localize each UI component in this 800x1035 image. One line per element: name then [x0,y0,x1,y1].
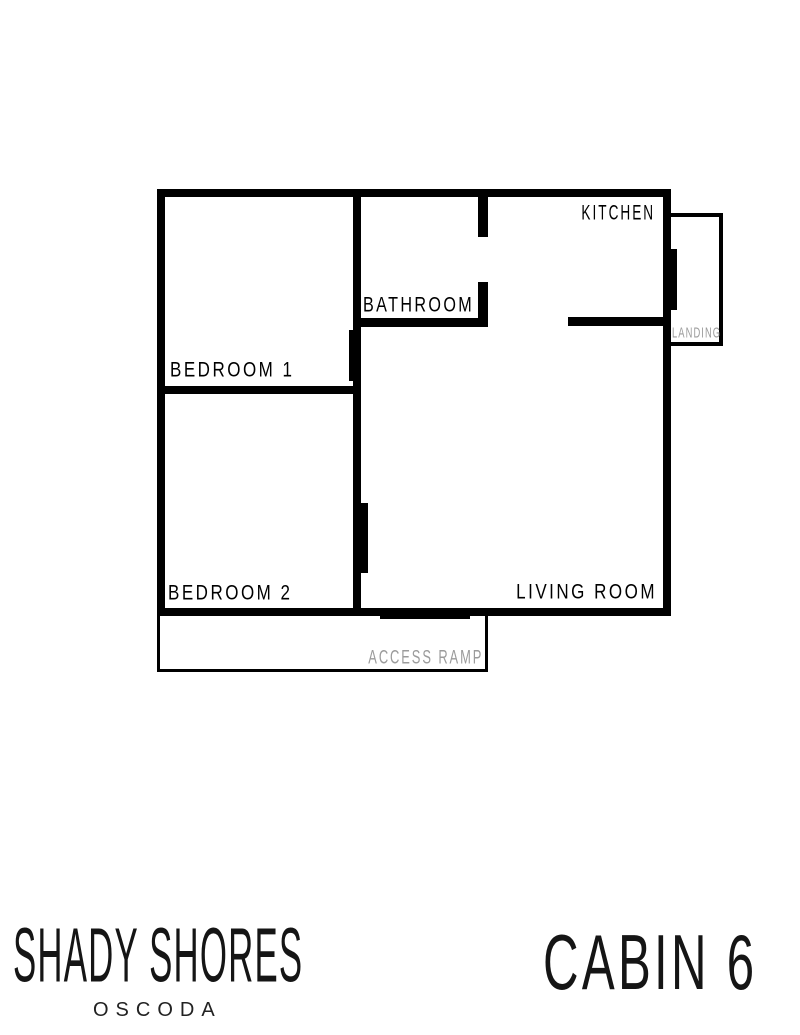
cabin-number-title: CABIN 6 [543,924,757,1002]
wall-kitchen-living-divider [568,317,671,326]
wall-bathroom-bottom [353,318,488,327]
resort-location: OSCODA [93,1000,222,1020]
living-room-label: LIVING ROOM [516,581,657,602]
wall-bedroom-divider [157,386,361,394]
kitchen-label: KITCHEN [581,202,655,223]
wall-bathroom-stub-upper [478,189,488,237]
resort-name-logo: SHADY SHORES [13,918,303,995]
bedroom-1-label: BEDROOM 1 [170,359,295,380]
floor-plan-page: KITCHEN BATHROOM BEDROOM 1 BEDROOM 2 LIV… [0,0,800,1035]
wall-bathroom-stub-lower [478,282,488,327]
wall-exterior-left [157,189,165,616]
bathroom-label: BATHROOM [363,294,474,315]
door-ramp-threshold [380,610,470,619]
bedroom-2-label: BEDROOM 2 [168,582,293,603]
door-landing [670,249,677,310]
door-bedroom2 [360,503,368,573]
landing-outline-top [671,213,723,217]
landing-outline-bottom [671,342,723,346]
landing-label: LANDING [672,325,721,340]
wall-exterior-top [157,189,671,197]
access-ramp-label: ACCESS RAMP [368,647,483,667]
door-bathroom [349,330,354,381]
